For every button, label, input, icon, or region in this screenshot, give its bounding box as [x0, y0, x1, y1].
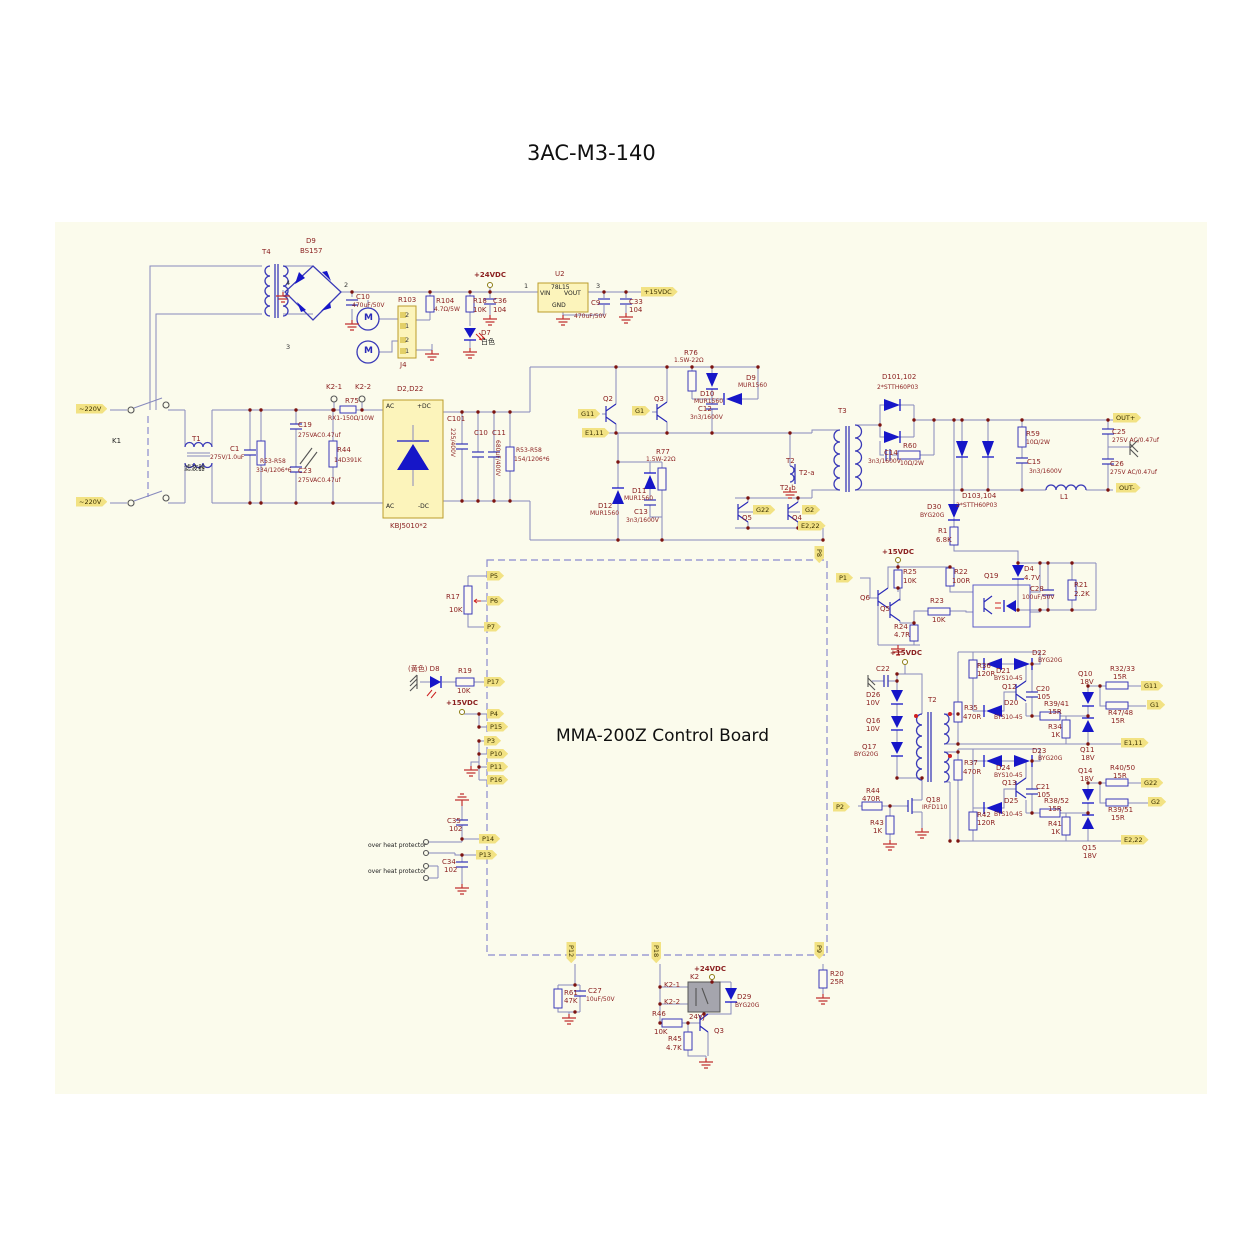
k2-2-bottom: K2-2 — [664, 999, 680, 1006]
r75-val: RX1-150Ω/10W — [328, 416, 374, 422]
q17-val: BYG20G — [854, 752, 878, 758]
r22-val: 100R — [952, 578, 970, 585]
d4-val: 4.7V — [1024, 575, 1040, 582]
overheat-2: over heat protector — [368, 869, 426, 875]
flag-out-minus: OUT- — [1116, 483, 1141, 493]
schematic-page: 3AC-M3-140MMA-200Z Control BoardT4D9BS15… — [0, 0, 1250, 1250]
r34-val: 1K — [1051, 732, 1060, 739]
r43-val: 1K — [873, 828, 882, 835]
r46-name: R46 — [652, 1011, 666, 1018]
r5358b-name: R53-R58 — [516, 448, 542, 454]
d101-name: D101,102 — [882, 374, 916, 381]
flag-p12: P12 — [567, 942, 577, 963]
c12-val: 3n3/1600V — [690, 415, 723, 421]
c1-val: 275V/1.0uF — [210, 455, 244, 461]
c23-name: C23 — [298, 468, 312, 475]
k2-2-top: K2-2 — [355, 384, 371, 391]
v15-drive: +15VDC — [890, 650, 922, 657]
r59-val: 10Ω/2W — [1026, 440, 1050, 446]
c14-val: 3n3/1600V — [868, 459, 901, 465]
r60-name: R60 — [903, 443, 917, 450]
j4-pin: 2 — [405, 312, 409, 319]
c11-name: C11 — [492, 430, 506, 437]
flag-e111-right: E1,11 — [1121, 738, 1149, 748]
r1-name: R1 — [938, 528, 947, 535]
c19-name: C19 — [298, 422, 312, 429]
r42-name: R42 — [977, 812, 991, 819]
r21-val: 2.2K — [1074, 591, 1090, 598]
flag-out-plus: OUT+ — [1113, 413, 1141, 423]
c33-name: C33 — [629, 299, 643, 306]
t2a-label: T2-a — [799, 470, 815, 477]
d9b-name: D9 — [746, 375, 756, 382]
c19-val: 275VAC0.47uf — [298, 433, 341, 439]
d9b-val: MUR1560 — [738, 383, 767, 389]
q17-name: Q17 — [862, 744, 876, 751]
c27-val: 10uF/50V — [586, 997, 615, 1003]
flag-e111-left: E1,11 — [582, 428, 610, 438]
flag-p14: P14 — [479, 834, 500, 844]
d7-color: 白色 — [481, 339, 495, 346]
q12-label: Q12 — [1002, 684, 1016, 691]
r44b-val: 470R — [862, 796, 880, 803]
r20-val: 25R — [830, 979, 844, 986]
flag-p16: P16 — [487, 775, 508, 785]
d7-name: D7 — [481, 330, 491, 337]
r17-name: R17 — [446, 594, 460, 601]
c15-val: 3n3/1600V — [1029, 469, 1062, 475]
r22-name: R22 — [954, 569, 968, 576]
u2-gnd: GND — [552, 303, 566, 309]
r23-name: R23 — [930, 598, 944, 605]
r5358a-name: R53-R58 — [260, 459, 286, 465]
r43-name: R43 — [870, 820, 884, 827]
r104-val: 4.7Ω/5W — [434, 307, 460, 313]
c9-val: 470uF/50V — [574, 314, 606, 320]
d101-val: 2*STTH60P03 — [877, 385, 918, 391]
c26-val: 275V AC/0.47uf — [1110, 470, 1157, 476]
v24-top: +24VDC — [474, 272, 506, 279]
c10b-name: C10 — [474, 430, 488, 437]
t4-label: T4 — [262, 249, 271, 256]
flag-g1-right: G1 — [1147, 700, 1165, 710]
u2-pin-3: 3 — [596, 283, 600, 290]
q14-name: Q14 — [1078, 768, 1092, 775]
k2-coil-val: 24VJ — [689, 1014, 705, 1021]
c12-name: C12 — [698, 406, 712, 413]
d12-name: D12 — [598, 503, 612, 510]
flag-15v-top: +15VDC — [641, 287, 678, 297]
c15-name: C15 — [1027, 459, 1041, 466]
d26-name: D26 — [866, 692, 880, 699]
u2-vout: VOUT — [564, 291, 581, 297]
d26-val: 10V — [866, 700, 880, 707]
r35-name: R35 — [964, 705, 978, 712]
j4-pin: 2 — [405, 337, 409, 344]
q15-name: Q15 — [1082, 845, 1096, 852]
r19-name: R19 — [458, 668, 472, 675]
k2-name: K2 — [690, 974, 699, 981]
c101-val: 225/400V — [449, 428, 455, 457]
d9-name: D9 — [306, 238, 316, 245]
c14-name: C14 — [884, 450, 898, 457]
d22-name: D22 — [1032, 650, 1046, 657]
bridge-ac1: AC — [386, 404, 394, 410]
r61-val: 47K — [564, 998, 578, 1005]
flag-e222-left: E2,22 — [798, 521, 826, 531]
c34-name: C34 — [442, 859, 456, 866]
r21-name: R21 — [1074, 582, 1088, 589]
flag-g1-left: G1 — [632, 406, 650, 416]
c36-name: C36 — [493, 298, 507, 305]
c26-name: C26 — [1110, 461, 1124, 468]
r17-val: 10K — [449, 607, 463, 614]
d11-val: MUR1560 — [624, 496, 653, 502]
r61-name: R61 — [564, 990, 578, 997]
flag-p10: P10 — [487, 749, 508, 759]
c35-name: C35 — [447, 818, 461, 825]
r23-val: 10K — [932, 617, 946, 624]
q16-name: Q16 — [866, 718, 880, 725]
flag-e222-right: E2,22 — [1121, 835, 1149, 845]
j4-pin: 1 — [405, 348, 409, 355]
r3233-val: 15R — [1113, 674, 1127, 681]
r18-name: R18 — [473, 298, 487, 305]
r1-val: 6.8K — [936, 537, 952, 544]
r35-val: 470R — [963, 714, 981, 721]
bridge-part: KBJ5010*2 — [390, 523, 427, 530]
d2d22-name: D2,D22 — [397, 386, 423, 393]
u2-name: U2 — [555, 271, 565, 278]
c25-name: C25 — [1112, 429, 1126, 436]
c101-name: C101 — [447, 416, 465, 423]
c27-name: C27 — [588, 988, 602, 995]
c11-val: 680uF/400V — [494, 440, 500, 476]
c20-name: C20 — [1036, 686, 1050, 693]
flag-p8: P8 — [815, 546, 825, 563]
q19-label: Q19 — [984, 573, 998, 580]
flag-g22-left: G22 — [753, 505, 775, 515]
d12-val: MUR1560 — [590, 511, 619, 517]
d103-val: 2*STTH60P03 — [956, 503, 997, 509]
pin-2: 2 — [344, 282, 348, 289]
u2-pin-1: 1 — [524, 283, 528, 290]
t2b-label: T2-b — [780, 485, 796, 492]
d20-val: BYS10-45 — [994, 715, 1023, 721]
d29-name: D29 — [737, 994, 751, 1001]
r25-val: 10K — [903, 578, 917, 585]
r3951-val: 15R — [1111, 815, 1125, 822]
flag-p1: P1 — [836, 573, 853, 583]
flag-220v-1: ~220V — [76, 404, 107, 414]
r45-val: 4.7K — [666, 1045, 682, 1052]
bridge-dcp: +DC — [417, 404, 431, 410]
q11-val: 18V — [1081, 755, 1095, 762]
t2ct-label: T2 — [786, 458, 795, 465]
flag-g22-right: G22 — [1141, 778, 1163, 788]
r36-val: 120R — [977, 671, 995, 678]
q3-label: Q3 — [654, 396, 664, 403]
c21-name: C21 — [1036, 784, 1050, 791]
c13-val: 3n3/1600V — [626, 518, 659, 524]
q11-name: Q11 — [1080, 747, 1094, 754]
r46-val: 10K — [654, 1029, 668, 1036]
flag-p11: P11 — [487, 762, 508, 772]
t1-cn: 滤波器 — [184, 465, 205, 472]
flag-g2-left: G2 — [802, 505, 820, 515]
d9-part: BS157 — [300, 248, 322, 255]
q10-name: Q10 — [1078, 671, 1092, 678]
v15-left: +15VDC — [446, 700, 478, 707]
r24-val: 4.7R — [894, 632, 910, 639]
flag-220v-2: ~220V — [76, 497, 107, 507]
d24-name: D24 — [996, 765, 1010, 772]
r44-val: 14D391K — [334, 458, 362, 464]
c10top-name: C10 — [356, 294, 370, 301]
r4050-val: 15R — [1113, 773, 1127, 780]
overheat-1: over heat protector — [368, 843, 426, 849]
r36-name: R36 — [977, 663, 991, 670]
q10-val: 18V — [1080, 679, 1094, 686]
v24-bottom: +24VDC — [694, 966, 726, 973]
q14-val: 18V — [1080, 776, 1094, 783]
d21-val: BYS10-45 — [994, 676, 1023, 682]
flag-p5: P5 — [487, 571, 504, 581]
r42-val: 120R — [977, 820, 995, 827]
flag-g11-left: G11 — [578, 409, 600, 419]
c34-val: 102 — [444, 867, 457, 874]
r3852-val: 15R — [1048, 806, 1062, 813]
r4748-name: R47/48 — [1108, 710, 1133, 717]
r44b-name: R44 — [866, 788, 880, 795]
flag-p9: P9 — [815, 942, 825, 959]
k2-1-top: K2-1 — [326, 384, 342, 391]
d23-name: D23 — [1032, 748, 1046, 755]
flag-p13: P13 — [476, 850, 497, 860]
r20-name: R20 — [830, 971, 844, 978]
q15-val: 18V — [1083, 853, 1097, 860]
q5-label: Q5 — [742, 515, 752, 522]
c36-val: 104 — [493, 307, 506, 314]
motor1-label: M — [364, 314, 373, 323]
r76-val: 1.5W-22Ω — [674, 358, 704, 364]
r37-val: 470R — [963, 769, 981, 776]
motor2-label: M — [364, 347, 373, 356]
d20-name: D20 — [1004, 700, 1018, 707]
r76-name: R76 — [684, 350, 698, 357]
c28-val: 100uF/50V — [1022, 595, 1054, 601]
t4-pin-4: 4 — [286, 280, 290, 287]
r37-name: R37 — [964, 760, 978, 767]
j4-pin: 1 — [405, 323, 409, 330]
c25-val: 275V AC/0.47uf — [1112, 438, 1159, 444]
d23-val: BYG20G — [1038, 756, 1062, 762]
q2-label: Q2 — [603, 396, 613, 403]
r41-name: R41 — [1048, 821, 1062, 828]
d11-name: D11 — [632, 488, 646, 495]
labels-layer: 3AC-M3-140MMA-200Z Control BoardT4D9BS15… — [0, 0, 1250, 1250]
flag-p2: P2 — [833, 802, 850, 812]
k1-label: K1 — [112, 438, 121, 445]
k2-1-bottom: K2-1 — [664, 982, 680, 989]
r44-name: R44 — [337, 447, 351, 454]
d25-val: BYS10-45 — [994, 812, 1023, 818]
r4050-name: R40/50 — [1110, 765, 1135, 772]
r45-name: R45 — [668, 1036, 682, 1043]
r3852-name: R38/52 — [1044, 798, 1069, 805]
d103-name: D103,104 — [962, 493, 996, 500]
d29-val: BYG20G — [735, 1003, 759, 1009]
q13-label: Q13 — [1002, 780, 1016, 787]
r59-name: R59 — [1026, 431, 1040, 438]
d21-name: D21 — [996, 668, 1010, 675]
r19-val: 10K — [457, 688, 471, 695]
t1-label: T1 — [192, 436, 201, 443]
page-title: 3AC-M3-140 — [527, 143, 656, 164]
bridge-dcm: -DC — [418, 504, 429, 510]
r5358a-val: 334/1206*6 — [256, 468, 292, 474]
r24-name: R24 — [894, 624, 908, 631]
t3-label: T3 — [838, 408, 847, 415]
c9-name: C9 — [591, 300, 600, 307]
flag-g11-right: G11 — [1141, 681, 1163, 691]
l1-label: L1 — [1060, 494, 1068, 501]
r77-name: R77 — [656, 449, 670, 456]
flag-p7: P7 — [484, 622, 501, 632]
d30-name: D30 — [927, 504, 941, 511]
j4-name: J4 — [400, 362, 407, 369]
t2drv-label: T2 — [928, 697, 937, 704]
flag-p6: P6 — [487, 596, 504, 606]
u2-vin: VIN — [540, 291, 550, 297]
flag-g2-right: G2 — [1148, 797, 1166, 807]
c10top-val: 470uF/50V — [352, 303, 384, 309]
r77-val: 1.5W-22Ω — [646, 457, 676, 463]
c35-val: 102 — [449, 826, 462, 833]
c33-val: 104 — [629, 307, 642, 314]
r34-name: R34 — [1048, 724, 1062, 731]
flag-p18: P18 — [652, 942, 662, 963]
r103-name: R103 — [398, 297, 416, 304]
flag-p17: P17 — [484, 677, 505, 687]
q6-label: Q6 — [860, 595, 870, 602]
q18-val: IRFD110 — [922, 805, 947, 811]
q4-label: Q4 — [792, 515, 802, 522]
r60-val: 10Ω/2W — [900, 461, 924, 467]
c13-name: C13 — [634, 509, 648, 516]
r4748-val: 15R — [1111, 718, 1125, 725]
q5b-label: Q5 — [880, 606, 890, 613]
bridge-ac2: AC — [386, 504, 394, 510]
d8-label: (黄色) D8 — [408, 666, 440, 673]
r3233-name: R32/33 — [1110, 666, 1135, 673]
t4-pin-3: 3 — [286, 344, 290, 351]
r18-val: 10K — [473, 307, 487, 314]
d25-name: D25 — [1004, 798, 1018, 805]
v15-feedback: +15VDC — [882, 549, 914, 556]
r25-name: R25 — [903, 569, 917, 576]
c23-val: 275VAC0.47uf — [298, 478, 341, 484]
flag-p3: P3 — [484, 736, 501, 746]
q3b-label: Q3 — [714, 1028, 724, 1035]
d22-val: BYG20G — [1038, 658, 1062, 664]
c22-name: C22 — [876, 666, 890, 673]
flag-p15: P15 — [487, 722, 508, 732]
d10-name: D10 — [700, 391, 714, 398]
d30-val: BYG20G — [920, 513, 944, 519]
r3941-name: R39/41 — [1044, 701, 1069, 708]
c28-name: C28 — [1030, 586, 1044, 593]
r75-name: R75 — [345, 398, 359, 405]
r3941-val: 15R — [1048, 709, 1062, 716]
r5358b-val: 154/1206*6 — [514, 457, 550, 463]
c1-name: C1 — [230, 446, 239, 453]
r41-val: 1K — [1051, 829, 1060, 836]
board-label: MMA-200Z Control Board — [556, 728, 769, 745]
r3951-name: R39/51 — [1108, 807, 1133, 814]
q18-name: Q18 — [926, 797, 940, 804]
d4-name: D4 — [1024, 566, 1034, 573]
q16-val: 10V — [866, 726, 880, 733]
r104-name: R104 — [436, 298, 454, 305]
flag-p4: P4 — [487, 709, 504, 719]
